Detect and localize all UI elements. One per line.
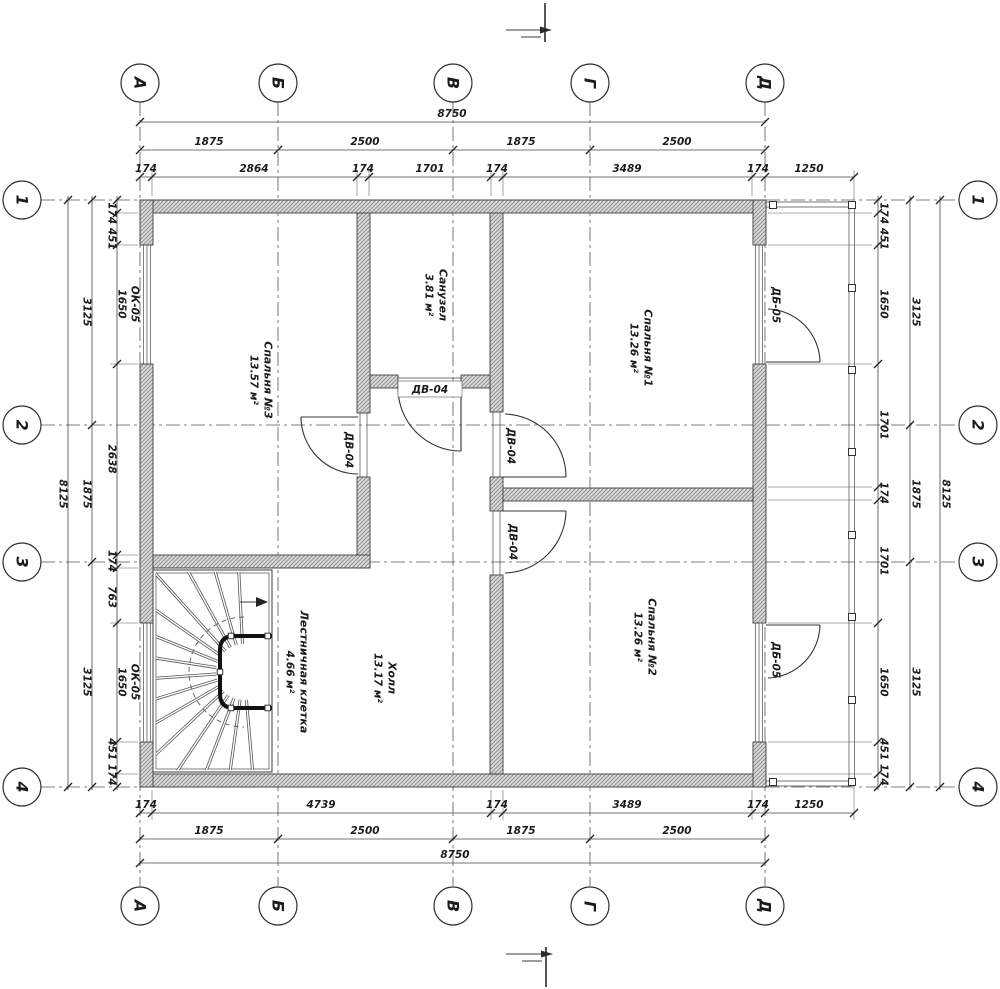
svg-text:2500: 2500 [350,825,379,837]
axis-col-D-top: Д [756,75,775,90]
svg-text:1701: 1701 [878,546,890,575]
axis-row-1-left: 1 [13,194,32,205]
axis-row-2-right: 2 [969,419,988,430]
room-hall-name: Холл [385,661,398,694]
door-label-bedroom3: ДВ-04 [343,431,355,468]
svg-text:1875: 1875 [506,136,535,148]
svg-text:763: 763 [106,586,118,608]
svg-text:3125: 3125 [81,297,93,326]
axis-row-1-right: 1 [969,194,988,205]
door-label-balcony-bottom: ДБ-05 [770,641,782,678]
svg-text:4739: 4739 [305,799,335,811]
svg-text:1650: 1650 [116,667,128,696]
dim-top-overall: 8750 [437,108,466,120]
stair-direction-arrow [256,597,268,607]
svg-text:174: 174 [352,163,374,175]
svg-text:3489: 3489 [612,799,641,811]
svg-text:174: 174 [486,163,508,175]
room-bedroom3-area: 13.57 м² [248,355,260,405]
dim-texts-top: 8750 1875 2500 1875 2500 174 2864 174 17… [135,108,824,175]
svg-text:1250: 1250 [794,163,823,175]
floor-plan-drawing: 8750 1875 2500 1875 2500 174 2864 174 17… [0,0,1000,989]
svg-text:3125: 3125 [910,667,922,696]
svg-text:2500: 2500 [662,825,691,837]
door-jambs [357,375,503,575]
svg-text:2500: 2500 [662,136,691,148]
svg-text:1701: 1701 [878,410,890,439]
svg-text:1875: 1875 [910,479,922,508]
axis-col-A-top: А [131,75,150,89]
axis-row-4-left: 4 [13,780,32,792]
svg-text:1250: 1250 [794,799,823,811]
svg-text:174: 174 [135,799,157,811]
dim-texts-left: 8125 3125 1875 3125 174 451 1650 ОК-05 2… [57,202,141,786]
axis-col-V-bottom: В [444,900,463,912]
svg-text:174 451: 174 451 [106,202,118,250]
svg-text:451 174: 451 174 [878,737,890,786]
svg-text:8125: 8125 [940,479,952,508]
room-bedroom1-name: Спальня №1 [641,309,654,387]
svg-text:1650: 1650 [116,289,128,318]
axis-col-V-top: В [444,77,463,89]
door-label-bedroom2: ДВ-04 [507,523,519,560]
svg-text:174 451: 174 451 [878,202,890,250]
svg-text:451 174: 451 174 [106,737,118,786]
room-bedroom3-name: Спальня №3 [261,341,274,419]
room-bedroom1-area: 13.26 м² [628,323,640,373]
svg-text:1875: 1875 [81,479,93,508]
room-stairs-area: 4.66 м² [284,650,296,694]
svg-text:2638: 2638 [106,444,118,473]
svg-text:174: 174 [106,550,118,572]
dim-texts-bottom: 174 4739 174 3489 174 1250 1875 2500 187… [135,799,824,861]
room-stairs-name: Лестничная клетка [297,610,310,734]
door-label-bathroom: ДВ-04 [411,384,448,396]
svg-text:8125: 8125 [57,479,69,508]
axis-col-D-bottom: Д [756,898,775,913]
door-label-bedroom1: ДВ-04 [505,427,517,464]
svg-text:1650: 1650 [878,289,890,318]
axis-row-4-right: 4 [969,780,988,792]
svg-text:174: 174 [747,163,769,175]
svg-text:3125: 3125 [81,667,93,696]
room-bathroom-area: 3.81 м² [423,274,435,317]
window-label-top: ОК-05 [129,286,141,322]
svg-text:3489: 3489 [612,163,641,175]
room-bedroom2-name: Спальня №2 [645,598,658,676]
svg-text:1875: 1875 [506,825,535,837]
opening-labels: ДВ-04 ДВ-04 ДВ-04 ДВ-04 ДБ-05 ДБ-05 [343,286,782,678]
svg-text:1875: 1875 [194,136,223,148]
svg-text:1875: 1875 [194,825,223,837]
window-label-bottom: ОК-05 [129,664,141,700]
axis-col-A-bottom: А [131,898,150,912]
floor-plan-canvas: 8750 1875 2500 1875 2500 174 2864 174 17… [0,0,1000,989]
section-mark-top [506,3,552,42]
axis-col-B-bottom: Б [269,900,288,912]
axis-col-B-top: Б [269,77,288,89]
axis-row-3-left: 3 [13,556,32,567]
room-bathroom-name: Санузел [436,269,449,321]
dim-bottom-overall: 8750 [440,849,469,861]
axis-col-G-bottom: Г [581,901,600,912]
svg-text:1650: 1650 [878,667,890,696]
axis-row-2-left: 2 [13,419,32,430]
svg-text:3125: 3125 [910,297,922,326]
axis-col-G-top: Г [581,78,600,89]
svg-text:174: 174 [747,799,769,811]
svg-text:174: 174 [135,163,157,175]
svg-text:174: 174 [486,799,508,811]
axis-row-3-right: 3 [969,556,988,567]
svg-text:2864: 2864 [239,163,268,175]
dim-texts-right: 8125 3125 1875 3125 174 451 1650 1701 17… [878,202,952,786]
room-hall-area: 13.17 м² [372,653,384,703]
door-label-balcony-top: ДБ-05 [770,286,782,323]
door-bathroom [398,388,461,451]
svg-text:174: 174 [878,482,890,504]
room-bedroom2-area: 13.26 м² [632,612,644,662]
svg-text:1701: 1701 [415,163,444,175]
section-mark-bottom [506,947,553,987]
svg-text:2500: 2500 [350,136,379,148]
